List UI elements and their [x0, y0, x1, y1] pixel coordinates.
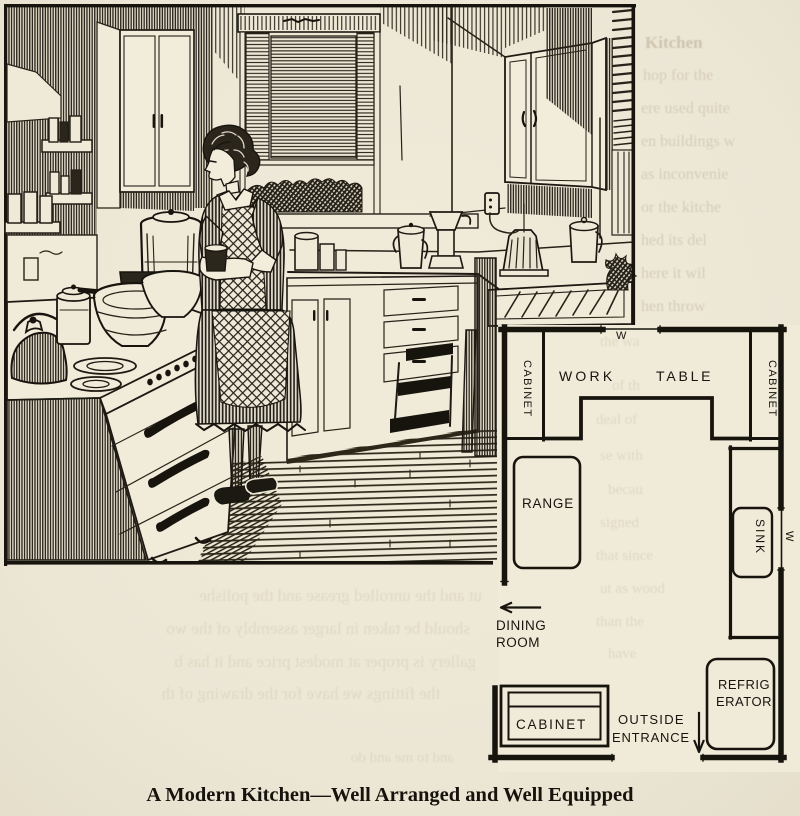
svg-text:A Modern Kitchen—Well Arranged: A Modern Kitchen—Well Arranged and Well …	[146, 784, 634, 806]
svg-text:ROOM: ROOM	[496, 635, 540, 650]
svg-text:of th: of th	[612, 378, 640, 394]
svg-text:SINK: SINK	[753, 519, 767, 555]
svg-text:the wa: the wa	[600, 334, 640, 350]
svg-text:REFRIG: REFRIG	[718, 677, 770, 692]
svg-text:hop for the: hop for the	[643, 67, 713, 84]
svg-text:RANGE: RANGE	[522, 496, 574, 511]
svg-text:that since: that since	[596, 548, 653, 564]
svg-text:ENTRANCE: ENTRANCE	[612, 730, 690, 745]
svg-text:CABINET: CABINET	[516, 717, 587, 732]
svg-text:should be taken in larger asse: should be taken in larger assembly of th…	[166, 619, 470, 638]
svg-text:Kitchen: Kitchen	[645, 33, 703, 52]
svg-text:the fittings we have for the d: the fittings we have for the drawing of …	[161, 684, 440, 703]
svg-text:en buildings w: en buildings w	[641, 133, 736, 150]
svg-text:as inconvenie: as inconvenie	[641, 166, 729, 183]
svg-text:ere used quite: ere used quite	[641, 100, 730, 117]
svg-text:have: have	[608, 646, 637, 662]
svg-text:or the kitche: or the kitche	[641, 199, 721, 216]
svg-text:WORK: WORK	[559, 368, 615, 384]
svg-text:ERATOR: ERATOR	[716, 694, 772, 709]
svg-text:CABINET: CABINET	[521, 360, 533, 417]
svg-text:becau: becau	[608, 482, 643, 498]
svg-text:hed its del: hed its del	[641, 232, 707, 249]
svg-text:gallery is proper at modest pr: gallery is proper at modest price and it…	[174, 652, 476, 671]
svg-text:hen throw: hen throw	[641, 298, 706, 315]
svg-text:W: W	[783, 531, 795, 542]
svg-text:and to me and do: and to me and do	[351, 750, 454, 766]
svg-text:signed: signed	[600, 515, 640, 531]
svg-text:deal of: deal of	[596, 412, 637, 428]
svg-text:se with: se with	[600, 448, 643, 464]
svg-text:OUTSIDE: OUTSIDE	[618, 712, 685, 727]
svg-text:than the: than the	[596, 614, 644, 630]
svg-text:DINING: DINING	[496, 618, 546, 633]
svg-text:TABLE: TABLE	[656, 368, 713, 384]
svg-text:here it wil: here it wil	[641, 265, 706, 282]
svg-text:ut and the unrolled grease and: ut and the unrolled grease and the polis…	[199, 586, 482, 605]
svg-text:ut as wood: ut as wood	[600, 581, 665, 597]
svg-text:CABINET: CABINET	[766, 360, 778, 417]
